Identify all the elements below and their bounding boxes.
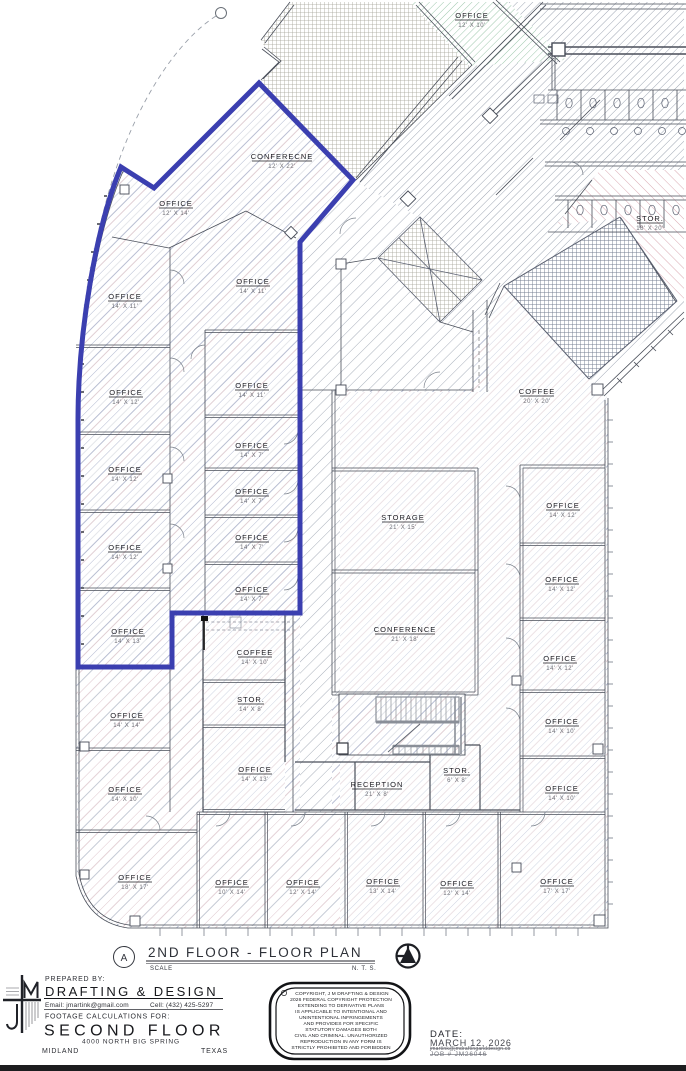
- svg-text:DRAFTING & DESIGN: DRAFTING & DESIGN: [45, 984, 218, 999]
- svg-text:14' X 7': 14' X 7': [240, 499, 264, 505]
- svg-text:OFFICE: OFFICE: [110, 711, 144, 720]
- svg-text:OFFICE: OFFICE: [546, 501, 580, 510]
- svg-text:14' X 12': 14' X 12': [111, 555, 138, 561]
- svg-text:OFFICE: OFFICE: [108, 465, 142, 474]
- svg-text:COPYRIGHT, J M DRAFTING & DE: COPYRIGHT, J M DRAFTING & DESIGN: [295, 991, 389, 997]
- svg-text:OFFICE: OFFICE: [545, 784, 579, 793]
- svg-text:OFFICE: OFFICE: [455, 11, 489, 20]
- svg-text:OFFICE: OFFICE: [235, 585, 269, 594]
- svg-text:STOR.: STOR.: [636, 214, 664, 223]
- svg-text:13' X 14': 13' X 14': [369, 889, 396, 895]
- svg-text:AND PROVIDES FOR SPECIFIC: AND PROVIDES FOR SPECIFIC: [303, 1021, 378, 1027]
- svg-text:12' X 22': 12' X 22': [268, 164, 295, 170]
- svg-text:14' X 10': 14' X 10': [111, 797, 138, 803]
- svg-text:UNINTENTIONAL INFRINGEMENTS: UNINTENTIONAL INFRINGEMENTS: [299, 1015, 383, 1021]
- svg-text:FOOTAGE CALCULATIONS FOR:: FOOTAGE CALCULATIONS FOR:: [45, 1014, 170, 1021]
- svg-text:6' X 8': 6' X 8': [447, 778, 467, 784]
- svg-text:2026 FEDERAL COPYRIGHT PROTECT: 2026 FEDERAL COPYRIGHT PROTECTION: [290, 997, 392, 1003]
- svg-text:REPRODUCTION IN ANY FORM: REPRODUCTION IN ANY FORM IS: [300, 1039, 382, 1045]
- svg-text:SECOND FLOOR: SECOND FLOOR: [44, 1023, 225, 1040]
- svg-text:18' X 20': 18' X 20': [636, 226, 663, 232]
- svg-text:OFFICE: OFFICE: [540, 877, 574, 886]
- svg-text:STOR.: STOR.: [237, 695, 265, 704]
- svg-text:OFFICE: OFFICE: [109, 388, 143, 397]
- svg-text:STORAGE: STORAGE: [381, 513, 425, 522]
- svg-text:14' X 11': 14' X 11': [239, 289, 266, 295]
- svg-text:OFFICE: OFFICE: [235, 533, 269, 542]
- svg-text:OFFICE: OFFICE: [159, 199, 193, 208]
- svg-text:21' X 18': 21' X 18': [391, 637, 418, 643]
- svg-text:14' X 12': 14' X 12': [548, 587, 575, 593]
- svg-text:OFFICE: OFFICE: [286, 878, 320, 887]
- svg-text:OFFICE: OFFICE: [215, 878, 249, 887]
- svg-text:14' X 13': 14' X 13': [114, 639, 141, 645]
- svg-text:2ND FLOOR - FLOOR PLAN: 2ND FLOOR - FLOOR PLAN: [148, 945, 362, 960]
- svg-text:14' X 12': 14' X 12': [549, 513, 576, 519]
- svg-text:EXTENDING TO DERIVATIVE PLA: EXTENDING TO DERIVATIVE PLANS: [298, 1003, 385, 1009]
- svg-text:4000 NORTH BIG SPRING: 4000 NORTH BIG SPRING: [82, 1039, 180, 1046]
- svg-text:TEXAS: TEXAS: [201, 1048, 228, 1055]
- svg-text:14' X 8': 14' X 8': [239, 707, 263, 713]
- svg-text:18' X 17': 18' X 17': [121, 885, 148, 891]
- svg-text:Email: jmartink@gmail.com: Email: jmartink@gmail.com: [45, 1002, 129, 1009]
- svg-text:21' X 8': 21' X 8': [365, 792, 389, 798]
- svg-text:14' X 12': 14' X 12': [112, 400, 139, 406]
- svg-text:12' X 10': 12' X 10': [458, 23, 485, 29]
- svg-text:14' X 10': 14' X 10': [548, 729, 575, 735]
- svg-text:STRICTLY PROHIBITED AND FORBI: STRICTLY PROHIBITED AND FORBIDDEN: [291, 1045, 391, 1051]
- svg-text:14' X 10': 14' X 10': [241, 660, 268, 666]
- svg-text:12' X 14': 12' X 14': [443, 891, 470, 897]
- svg-text:14' X 7': 14' X 7': [240, 597, 264, 603]
- svg-text:OFFICE: OFFICE: [543, 654, 577, 663]
- svg-text:STATUTORY DAMAGES BOTH: STATUTORY DAMAGES BOTH: [305, 1027, 377, 1033]
- svg-text:OFFICE: OFFICE: [235, 487, 269, 496]
- svg-text:OFFICE: OFFICE: [236, 277, 270, 286]
- svg-text:10' X 14': 10' X 14': [218, 890, 245, 896]
- svg-text:12' X 14': 12' X 14': [162, 211, 189, 217]
- svg-text:OFFICE: OFFICE: [108, 785, 142, 794]
- svg-text:OFFICE: OFFICE: [545, 717, 579, 726]
- svg-text:PREPARED BY:: PREPARED BY:: [45, 976, 105, 983]
- svg-text:OFFICE: OFFICE: [366, 877, 400, 886]
- svg-text:14' X 11': 14' X 11': [238, 393, 265, 399]
- svg-text:OFFICE: OFFICE: [238, 765, 272, 774]
- svg-text:OFFICE: OFFICE: [108, 292, 142, 301]
- svg-text:OFFICE: OFFICE: [235, 441, 269, 450]
- svg-text:14' X 7': 14' X 7': [240, 453, 264, 459]
- svg-text:OFFICE: OFFICE: [111, 627, 145, 636]
- svg-text:COFFEE: COFFEE: [519, 387, 555, 396]
- svg-text:OFFICE: OFFICE: [108, 543, 142, 552]
- svg-text:OFFICE: OFFICE: [118, 873, 152, 882]
- svg-text:17' X 17': 17' X 17': [543, 889, 570, 895]
- svg-text:SCALE: SCALE: [150, 966, 173, 972]
- svg-text:MIDLAND: MIDLAND: [42, 1048, 79, 1055]
- svg-text:CIVIL AND CRIMINAL. UNAUTHORIZ: CIVIL AND CRIMINAL. UNAUTHORIZED: [295, 1033, 388, 1039]
- svg-text:JOB # JM26046: JOB # JM26046: [430, 1051, 487, 1058]
- svg-text:Cell: (432) 425-5297: Cell: (432) 425-5297: [150, 1002, 213, 1009]
- svg-text:14' X 14': 14' X 14': [113, 723, 140, 729]
- svg-text:12' X 14': 12' X 14': [289, 890, 316, 896]
- svg-text:IS APPLICABLE TO INTENTIONAL: IS APPLICABLE TO INTENTIONAL AND: [295, 1009, 387, 1015]
- svg-text:14' X 13': 14' X 13': [241, 777, 268, 783]
- svg-text:COFFEE: COFFEE: [237, 648, 273, 657]
- svg-text:OFFICE: OFFICE: [440, 879, 474, 888]
- svg-text:14' X 12': 14' X 12': [546, 666, 573, 672]
- svg-text:21' X 15': 21' X 15': [389, 525, 416, 531]
- svg-text:14' X 10': 14' X 10': [548, 796, 575, 802]
- svg-text:OFFICE: OFFICE: [545, 575, 579, 584]
- svg-text:CONFERECNE: CONFERECNE: [251, 152, 314, 161]
- svg-text:14' X 12': 14' X 12': [111, 477, 138, 483]
- svg-text:RECEPTION: RECEPTION: [351, 780, 404, 789]
- svg-text:CONFERENCE: CONFERENCE: [374, 625, 437, 634]
- svg-text:14' X 7': 14' X 7': [240, 545, 264, 551]
- svg-text:N. T. S.: N. T. S.: [352, 966, 376, 972]
- svg-text:OFFICE: OFFICE: [235, 381, 269, 390]
- svg-text:STOR.: STOR.: [443, 766, 471, 775]
- svg-text:14' X 11': 14' X 11': [111, 304, 138, 310]
- svg-text:A: A: [121, 953, 128, 964]
- svg-text:20' X 20': 20' X 20': [523, 399, 550, 405]
